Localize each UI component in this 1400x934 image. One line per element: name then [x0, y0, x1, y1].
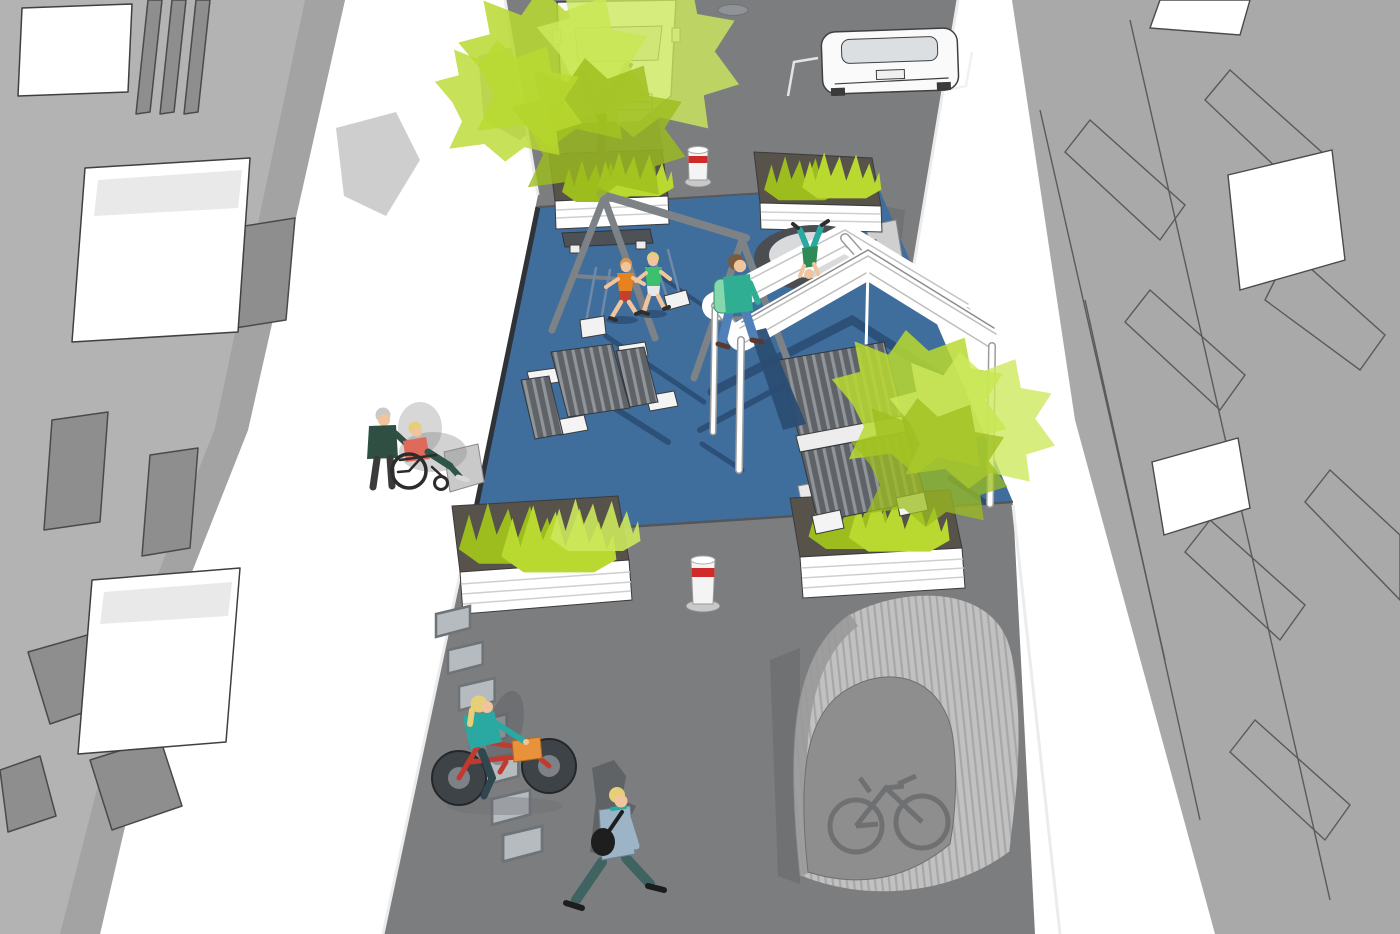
shirt [617, 273, 634, 291]
shoe [642, 312, 648, 314]
bollard-red-band [689, 156, 708, 163]
shelter-opening [804, 677, 956, 880]
scarf [612, 807, 625, 809]
shoulder-bag [591, 828, 615, 856]
head [734, 260, 746, 272]
bollard-top-cap [688, 147, 708, 154]
head [621, 262, 631, 272]
head [378, 414, 390, 426]
parked-car [821, 28, 959, 97]
hair-strand [470, 710, 472, 724]
torso [723, 274, 753, 314]
head [412, 427, 422, 437]
bollard-body [691, 560, 715, 604]
head [481, 701, 493, 713]
swing-seat [580, 316, 606, 338]
shoe [648, 886, 664, 890]
shirt [645, 267, 662, 286]
head [615, 795, 628, 808]
car-license-plate [876, 70, 904, 80]
shoe [458, 477, 467, 480]
head [804, 269, 814, 279]
shoe [610, 318, 616, 320]
bollard-top [685, 147, 711, 188]
scene-canvas [0, 0, 1400, 934]
head [648, 256, 658, 266]
planter-bottom-left [452, 496, 641, 614]
shoe [752, 340, 762, 342]
torso [367, 425, 398, 459]
shoe [718, 344, 728, 347]
bollard-top-cap [691, 556, 715, 564]
bollard-red-band [692, 568, 715, 577]
hand [523, 739, 529, 745]
car-rear-window [841, 36, 938, 63]
car-wheel [937, 82, 951, 90]
bollard-body [688, 150, 708, 180]
shoe [664, 307, 669, 309]
street-redesign-rendering [0, 0, 1400, 934]
bench-leg [636, 241, 646, 249]
car-wheel [831, 88, 845, 96]
manhole-cover [718, 5, 748, 16]
bench-leg [570, 245, 580, 253]
